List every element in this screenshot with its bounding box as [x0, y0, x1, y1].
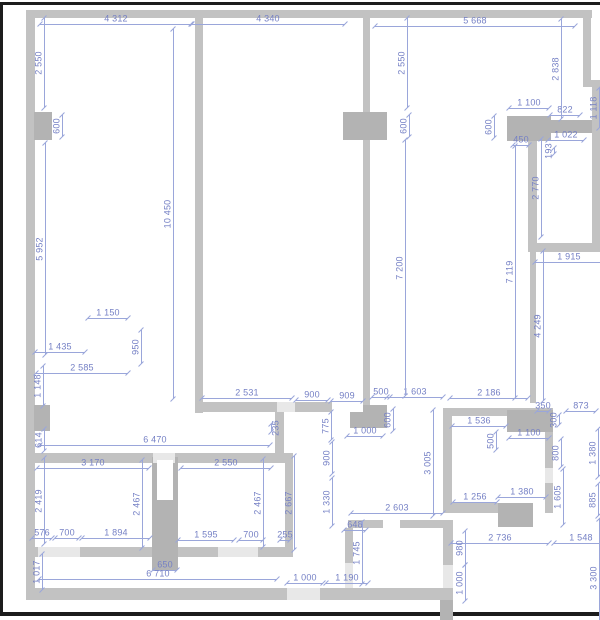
dimension-line — [450, 398, 528, 399]
dimension-label: 2 186 — [477, 389, 501, 398]
dimension-line — [332, 478, 333, 525]
wall-segment — [443, 408, 452, 513]
dimension-line — [351, 513, 443, 514]
dimension-label: 2 838 — [552, 57, 561, 81]
wall-opening — [157, 460, 173, 500]
dimension-label: 700 — [243, 531, 259, 540]
dimension-line — [541, 139, 542, 237]
dimension-tick — [441, 394, 447, 400]
dimension-label: 900 — [304, 391, 320, 400]
dimension-line — [287, 583, 322, 584]
dimension-line — [62, 115, 63, 136]
dimension-label: 1 894 — [104, 529, 128, 538]
dimension-tick — [126, 315, 132, 321]
dimension-line — [543, 251, 544, 402]
dimension-label: 1 915 — [557, 253, 581, 262]
dimension-line — [88, 318, 129, 319]
dimension-label: 2 419 — [35, 489, 44, 513]
dimension-line — [566, 411, 597, 412]
wall-opening — [287, 588, 320, 600]
dimension-line — [331, 401, 363, 402]
wall-opening — [383, 520, 400, 528]
dimension-tick — [573, 23, 579, 29]
dimension-label: 1 745 — [353, 541, 362, 565]
dimension-label: 6 470 — [143, 436, 167, 445]
wall-segment — [343, 112, 387, 140]
dimension-line — [561, 439, 562, 467]
dimension-label: 1 190 — [335, 574, 359, 583]
dimension-label: 1 148 — [34, 374, 43, 398]
dimension-label: 1 605 — [554, 485, 563, 509]
dimension-tick — [268, 465, 274, 471]
dimension-line — [393, 409, 394, 430]
wall-segment — [440, 600, 453, 620]
dimension-label: 1 118 — [590, 97, 599, 120]
dimension-line — [509, 108, 548, 109]
dimension-line — [407, 18, 408, 108]
dimension-line — [332, 442, 333, 474]
dimension-label: 2 736 — [488, 534, 512, 543]
dimension-label: 3 300 — [590, 566, 599, 590]
dimension-label: 7 119 — [506, 261, 515, 284]
dimension-tick — [577, 112, 583, 118]
dimension-line — [42, 554, 43, 590]
wall-segment — [498, 503, 533, 527]
dimension-line — [296, 400, 328, 401]
dimension-label: 600 — [400, 118, 409, 134]
dimension-label: 600 — [384, 412, 393, 428]
wall-segment — [363, 18, 370, 408]
dimension-label: 4 312 — [104, 15, 128, 24]
dimension-tick — [538, 234, 544, 240]
dimension-line — [40, 24, 193, 25]
dimension-label: 7 200 — [396, 256, 405, 280]
dimension-line — [347, 436, 382, 437]
dimension-line — [598, 429, 599, 478]
dimension-line — [494, 116, 495, 137]
dimension-label: 4 249 — [534, 314, 543, 338]
dimension-tick — [41, 105, 47, 111]
dimension-tick — [404, 105, 410, 111]
dimension-label: 5 952 — [36, 237, 45, 261]
dimension-label: 1 100 — [517, 429, 541, 438]
dimension-label: 3 170 — [81, 459, 105, 468]
dimension-label: 600 — [53, 118, 62, 134]
wall-segment — [197, 402, 277, 412]
wall-opening — [277, 402, 295, 412]
dimension-tick — [267, 442, 273, 448]
dimension-label: 2 667 — [285, 491, 294, 515]
dimension-tick — [170, 396, 176, 402]
dimension-line — [387, 397, 444, 398]
dimension-label: 800 — [552, 445, 561, 461]
dimension-tick — [440, 510, 446, 516]
dimension-line — [294, 456, 295, 551]
dimension-label: 873 — [573, 402, 589, 411]
dimension-tick — [83, 349, 89, 355]
dimension-line — [405, 140, 406, 395]
floor-plan-drawing: 4 3124 3405 6681 1008221 0224501 9151 15… — [0, 0, 600, 620]
dimension-line — [362, 522, 363, 584]
dimension-line — [35, 352, 86, 353]
drawing-frame-line — [0, 612, 600, 616]
wall-segment — [34, 112, 52, 140]
dimension-line — [548, 140, 584, 141]
dimension-line — [263, 459, 264, 546]
wall-segment — [34, 405, 50, 431]
dimension-label: 6 710 — [146, 570, 170, 579]
dimension-label: 4 340 — [256, 15, 280, 24]
dimension-tick — [365, 580, 371, 586]
dimension-label: 2 550 — [214, 459, 238, 468]
dimension-label: 1 017 — [33, 560, 42, 584]
dimension-tick — [274, 576, 280, 582]
dimension-tick — [138, 361, 144, 367]
dimension-line — [433, 410, 434, 517]
dimension-label: 2 550 — [398, 51, 407, 75]
dimension-label: 614 — [35, 432, 44, 448]
dimension-tick — [594, 408, 600, 414]
wall-segment — [295, 402, 332, 412]
dimension-line — [202, 398, 292, 399]
dimension-label: 885 — [589, 492, 598, 508]
dimension-line — [331, 412, 332, 439]
dimension-tick — [41, 541, 47, 547]
dimension-line — [45, 143, 46, 354]
dimension-label: 1 536 — [467, 417, 491, 426]
wall-opening — [443, 565, 453, 588]
dimension-label: 2 770 — [532, 176, 541, 200]
wall-opening — [545, 468, 553, 483]
dimension-line — [181, 468, 271, 469]
dimension-label: 600 — [485, 119, 494, 135]
dimension-line — [515, 146, 516, 398]
dimension-tick — [364, 527, 370, 533]
dimension-line — [44, 18, 45, 108]
dimension-line — [409, 115, 410, 136]
dimension-label: 2 467 — [254, 491, 263, 515]
dimension-label: 909 — [339, 392, 355, 401]
dimension-label: 700 — [59, 529, 75, 538]
dimension-tick — [546, 105, 552, 111]
dimension-line — [563, 469, 564, 526]
dimension-label: 576 — [34, 529, 50, 538]
dimension-line — [37, 468, 149, 469]
wall-segment — [26, 588, 453, 600]
dimension-tick — [560, 523, 566, 529]
dimension-line — [173, 29, 174, 400]
dimension-tick — [462, 598, 468, 604]
drawing-frame-line — [0, 2, 600, 5]
dimension-label: 500 — [487, 433, 496, 449]
dimension-line — [141, 330, 142, 364]
dimension-line — [509, 438, 548, 439]
dimension-line — [44, 458, 45, 544]
dimension-line — [43, 366, 44, 407]
wall-opening — [533, 503, 545, 513]
dimension-label: 5 668 — [463, 17, 487, 26]
dimension-line — [535, 262, 600, 263]
dimension-label: 1 330 — [323, 490, 332, 514]
dimension-label: 1 000 — [353, 427, 377, 436]
wall-opening — [332, 402, 363, 412]
dimension-line — [452, 426, 506, 427]
dimension-label: 1 380 — [510, 488, 534, 497]
dimension-tick — [380, 433, 386, 439]
dimension-line — [451, 543, 548, 544]
dimension-label: 1 100 — [517, 99, 541, 108]
dimension-line — [375, 26, 576, 27]
dimension-line — [498, 497, 547, 498]
dimension-tick — [59, 134, 65, 140]
dimension-tick — [342, 21, 348, 27]
dimension-label: 1 548 — [569, 534, 593, 543]
dimension-label: 10 450 — [164, 200, 173, 229]
dimension-label: 822 — [557, 106, 573, 115]
dimension-label: 3 005 — [424, 451, 433, 475]
dimension-line — [82, 538, 149, 539]
dimension-tick — [430, 513, 436, 519]
dimension-tick — [329, 523, 335, 529]
dimension-tick — [595, 475, 600, 481]
dimension-label: 2 531 — [235, 389, 259, 398]
dimension-label: 775 — [322, 418, 331, 434]
dimension-label: 1 022 — [554, 131, 578, 140]
dimension-line — [550, 115, 579, 116]
dimension-tick — [491, 135, 497, 141]
dimension-tick — [390, 428, 396, 434]
dimension-line — [178, 540, 235, 541]
dimension-label: 1 595 — [194, 531, 218, 540]
wall-segment — [583, 18, 591, 80]
dimension-label: 950 — [132, 339, 141, 355]
dimension-line — [465, 531, 466, 566]
dimension-label: 1 000 — [456, 571, 465, 595]
wall-opening — [218, 547, 258, 557]
dimension-line — [36, 373, 128, 374]
dimension-label: 900 — [323, 450, 332, 466]
dimension-line — [39, 579, 277, 580]
dimension-label: 1 150 — [96, 309, 120, 318]
dimension-line — [561, 19, 562, 120]
dimension-line — [554, 543, 600, 544]
dimension-line — [598, 484, 599, 515]
dimension-line — [40, 445, 269, 446]
dimension-label: 1 256 — [463, 493, 487, 502]
dimension-label: 980 — [456, 540, 465, 556]
wall-segment — [195, 18, 203, 413]
dimension-label: 1 435 — [48, 343, 72, 352]
dimension-label: 2 603 — [385, 504, 409, 513]
dimension-line — [191, 24, 345, 25]
dimension-label: 2 585 — [70, 364, 94, 373]
dimension-label: 2 467 — [133, 492, 142, 516]
drawing-frame-line — [0, 2, 3, 616]
dimension-line — [142, 460, 143, 547]
dimension-tick — [581, 137, 587, 143]
dimension-tick — [125, 370, 131, 376]
dimension-label: 2 550 — [35, 51, 44, 75]
dimension-line — [465, 565, 466, 600]
dimension-line — [453, 502, 498, 503]
dimension-label: 1 380 — [589, 441, 598, 465]
dimension-label: 1 000 — [293, 574, 317, 583]
